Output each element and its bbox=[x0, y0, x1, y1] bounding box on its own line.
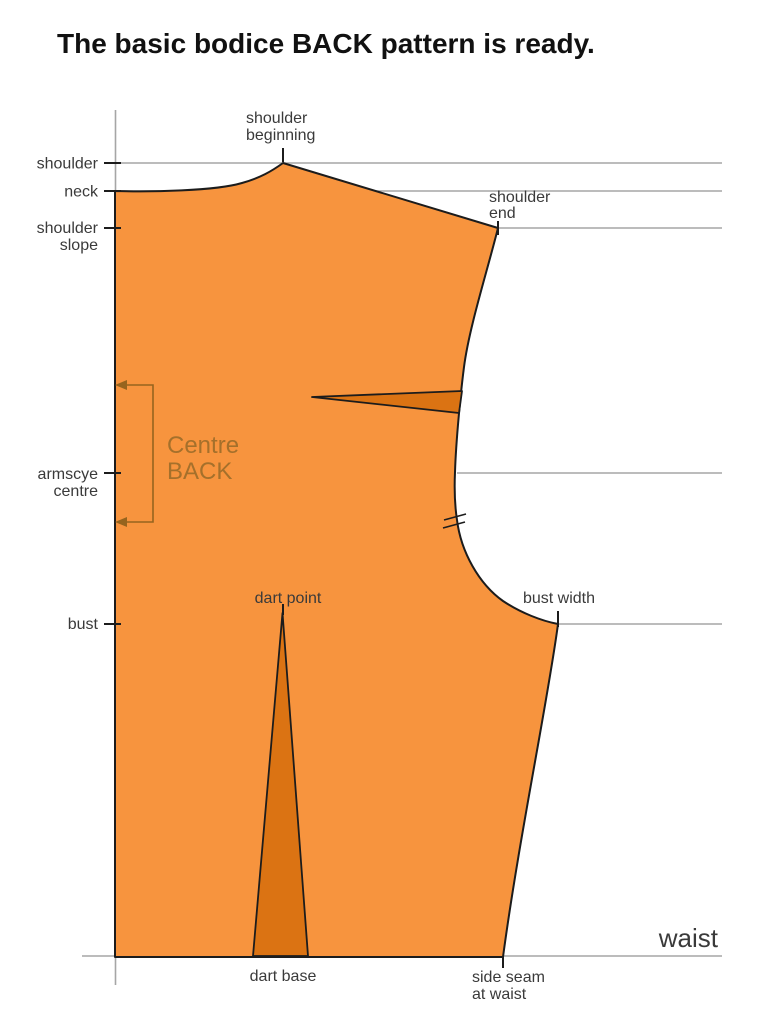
label-shoulder-slope-line1: shoulder bbox=[37, 220, 99, 237]
label-shoulder-slope-line2: slope bbox=[60, 237, 98, 254]
bodice-pattern-page: The basic bodice BACK pattern is ready. … bbox=[0, 0, 768, 1024]
pattern-outline bbox=[115, 163, 558, 957]
label-side-seam-at-waist-line2: at waist bbox=[472, 986, 527, 1003]
label-waist: waist bbox=[658, 923, 719, 953]
label-bust: bust bbox=[68, 616, 99, 633]
label-shoulder-end-line1: shoulder bbox=[489, 189, 551, 206]
label-armscye-centre-line1: armscye bbox=[38, 466, 99, 483]
pattern-text-centre: Centre bbox=[167, 432, 239, 459]
bodice-pattern-diagram: The basic bodice BACK pattern is ready. … bbox=[0, 0, 768, 1024]
label-bust-width: bust width bbox=[523, 590, 595, 607]
label-shoulder-beginning-line2: beginning bbox=[246, 127, 315, 144]
label-side-seam-at-waist-line1: side seam bbox=[472, 969, 545, 986]
label-armscye-centre-line2: centre bbox=[54, 483, 99, 500]
label-neck: neck bbox=[64, 184, 99, 201]
pattern-text-back: BACK bbox=[167, 458, 232, 485]
label-shoulder-beginning-line1: shoulder bbox=[246, 110, 308, 127]
page-title: The basic bodice BACK pattern is ready. bbox=[57, 28, 595, 59]
label-shoulder-end-line2: end bbox=[489, 205, 516, 222]
label-dart-point: dart point bbox=[255, 590, 322, 607]
label-shoulder: shoulder bbox=[37, 156, 99, 173]
label-dart-base: dart base bbox=[250, 968, 317, 985]
